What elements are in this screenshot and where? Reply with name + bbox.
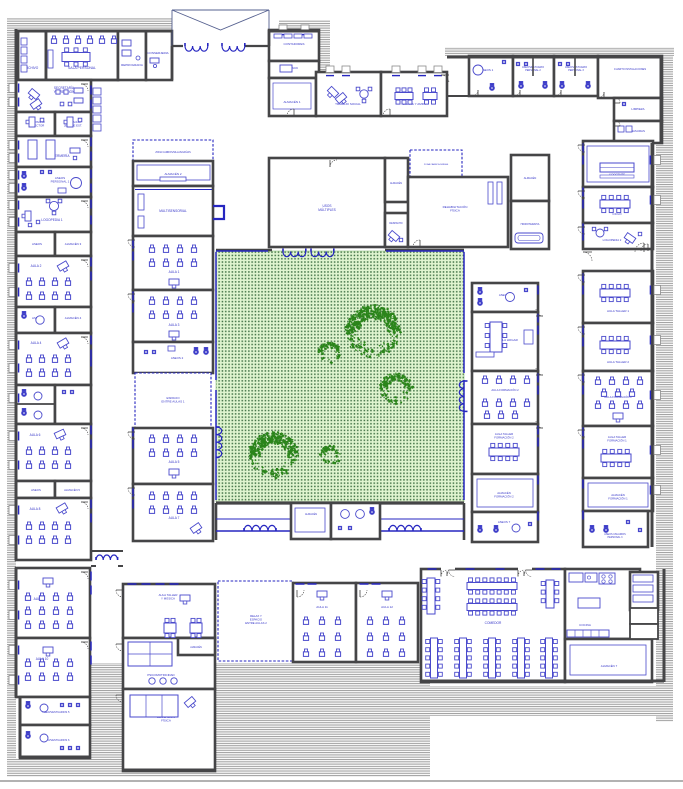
svg-text:AULA TALLERFORMACIÓN 1: AULA TALLERFORMACIÓN 1 bbox=[607, 435, 627, 442]
svg-text:AULA TALLER 1: AULA TALLER 1 bbox=[607, 309, 629, 313]
svg-text:AULA 12: AULA 12 bbox=[381, 605, 393, 609]
svg-text:DESPACHO: DESPACHO bbox=[389, 222, 402, 225]
svg-text:AULA 2: AULA 2 bbox=[31, 264, 42, 268]
svg-text:ALMACÉN: ALMACÉN bbox=[305, 513, 317, 516]
svg-text:AULA 7: AULA 7 bbox=[169, 516, 180, 520]
svg-text:LIMPIEZA: LIMPIEZA bbox=[631, 107, 644, 111]
svg-text:LOGOPEDIA 2: LOGOPEDIA 2 bbox=[603, 238, 622, 242]
svg-text:AULA 11: AULA 11 bbox=[316, 605, 328, 609]
svg-text:ALMACÉN 5: ALMACÉN 5 bbox=[64, 487, 80, 492]
svg-text:ALMACÉN 3: ALMACÉN 3 bbox=[65, 241, 82, 246]
svg-text:AULA 3: AULA 3 bbox=[169, 323, 180, 327]
svg-text:AULA TALLERFORMACIÓN 2: AULA TALLERFORMACIÓN 2 bbox=[494, 432, 514, 439]
svg-text:AULA 5: AULA 5 bbox=[169, 460, 180, 464]
svg-text:AULA TALLER 2: AULA TALLER 2 bbox=[607, 360, 629, 364]
svg-text:AULA FORMACIÓN 2: AULA FORMACIÓN 2 bbox=[491, 387, 519, 392]
svg-text:ALMACÉN: ALMACÉN bbox=[190, 646, 202, 649]
svg-text:ZONA CARROS/GRÚAS: ZONA CARROS/GRÚAS bbox=[424, 163, 449, 166]
svg-text:ASEOS 2: ASEOS 2 bbox=[171, 356, 184, 360]
svg-text:REPROGRAFIA: REPROGRAFIA bbox=[121, 63, 143, 67]
svg-text:AULA TALLERY MÚSICA: AULA TALLERY MÚSICA bbox=[159, 593, 178, 601]
svg-text:ASEOS 7: ASEOS 7 bbox=[498, 520, 511, 524]
svg-text:CONTADORES: CONTADORES bbox=[284, 42, 305, 46]
svg-text:ALMACÉN: ALMACÉN bbox=[390, 182, 402, 185]
svg-text:ALMACÉN 7: ALMACÉN 7 bbox=[601, 663, 618, 668]
svg-text:AULA 6: AULA 6 bbox=[30, 433, 41, 437]
svg-text:ALMACÉN 2: ALMACÉN 2 bbox=[164, 171, 181, 176]
svg-text:PSICOMOTRICIDAD: PSICOMOTRICIDAD bbox=[147, 673, 174, 677]
svg-text:SALA PERSONAL: SALA PERSONAL bbox=[68, 66, 96, 70]
svg-text:ASEOS: ASEOS bbox=[31, 488, 41, 492]
svg-text:COMEDOR: COMEDOR bbox=[485, 621, 502, 625]
svg-text:AULA 4: AULA 4 bbox=[31, 341, 42, 345]
svg-text:COCINA: COCINA bbox=[579, 623, 591, 627]
svg-text:ASEO/VESTUARIOPERSONAL 3: ASEO/VESTUARIOPERSONAL 3 bbox=[565, 66, 587, 72]
svg-text:AULA 1: AULA 1 bbox=[169, 270, 180, 274]
svg-text:LOGOPEDIA 1: LOGOPEDIA 1 bbox=[41, 218, 62, 222]
svg-text:CUARTO INSTALACIONES: CUARTO INSTALACIONES bbox=[614, 67, 646, 71]
svg-text:MULTISENSORIAL: MULTISENSORIAL bbox=[159, 209, 187, 213]
svg-text:ASEOS: ASEOS bbox=[32, 242, 42, 246]
svg-text:AULA 8: AULA 8 bbox=[30, 507, 41, 511]
svg-text:ZONA CARROS/SILLAS/GRÚAS: ZONA CARROS/SILLAS/GRÚAS bbox=[155, 151, 191, 154]
svg-text:ALMACÉN 1: ALMACÉN 1 bbox=[283, 99, 300, 104]
svg-text:CONSERJERIA: CONSERJERIA bbox=[147, 51, 168, 55]
svg-text:HIDROTERAPIA: HIDROTERAPIA bbox=[521, 223, 540, 226]
svg-text:ALMACÉN 4: ALMACÉN 4 bbox=[65, 315, 82, 320]
svg-text:BASURAS: BASURAS bbox=[631, 129, 645, 133]
